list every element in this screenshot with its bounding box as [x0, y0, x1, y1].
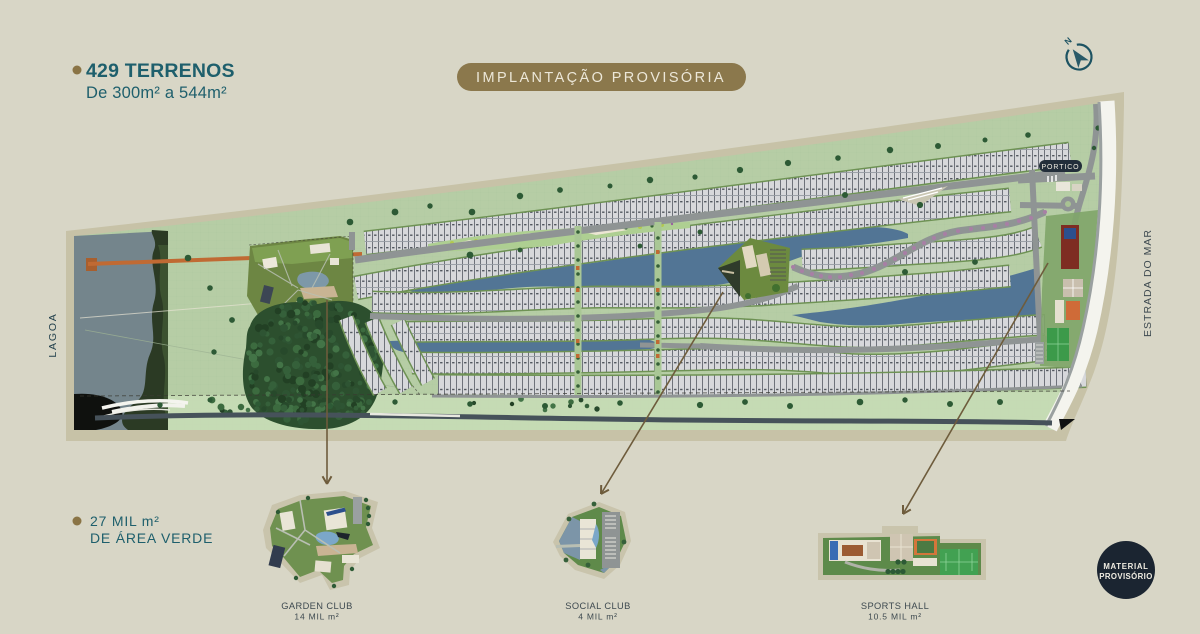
svg-text:PORTICO: PORTICO [1041, 164, 1079, 171]
svg-text:LAGOA: LAGOA [47, 312, 59, 357]
svg-text:MATERIAL: MATERIAL [1103, 562, 1148, 571]
svg-text:GARDEN CLUB: GARDEN CLUB [281, 601, 353, 611]
svg-text:PROVISÓRIO: PROVISÓRIO [1099, 572, 1152, 581]
svg-text:DE ÁREA VERDE: DE ÁREA VERDE [90, 530, 213, 546]
svg-text:SOCIAL CLUB: SOCIAL CLUB [565, 601, 631, 611]
svg-text:27 MIL m²: 27 MIL m² [90, 513, 160, 529]
svg-text:SPORTS HALL: SPORTS HALL [861, 601, 929, 611]
svg-text:10.5 MIL m²: 10.5 MIL m² [868, 612, 922, 622]
svg-text:IMPLANTAÇÃO PROVISÓRIA: IMPLANTAÇÃO PROVISÓRIA [476, 69, 726, 86]
svg-text:429 TERRENOS: 429 TERRENOS [86, 60, 235, 82]
svg-text:4 MIL m²: 4 MIL m² [578, 612, 618, 622]
svg-text:De 300m² a 544m²: De 300m² a 544m² [86, 84, 227, 102]
svg-text:14 MIL m²: 14 MIL m² [294, 612, 339, 622]
svg-text:ESTRADA DO MAR: ESTRADA DO MAR [1142, 229, 1154, 337]
